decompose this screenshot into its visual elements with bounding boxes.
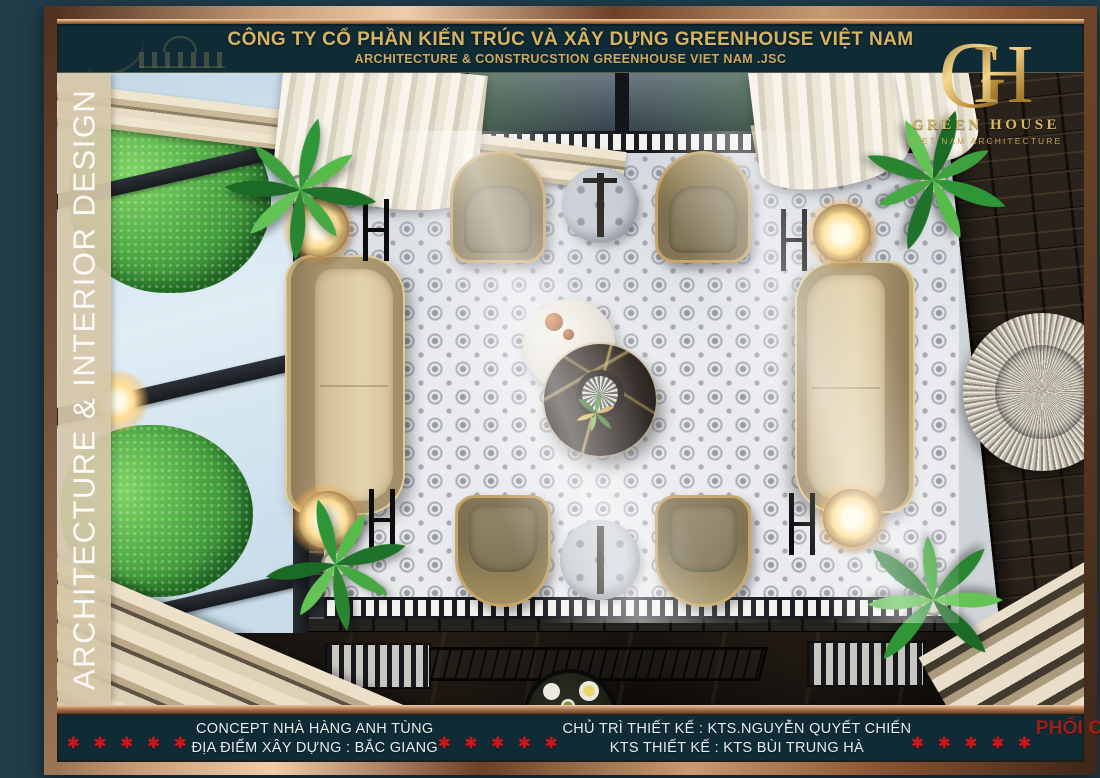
side-band-label: ARCHITECTURE & INTERIOR DESIGN bbox=[58, 73, 111, 705]
copper-decor-object bbox=[545, 313, 563, 331]
star-group: ✱ ✱ ✱ ✱ ✱ bbox=[438, 734, 563, 759]
sheet-title: PHỐI CẢNH NỘI THẤT TẦNG 01 bbox=[1036, 718, 1100, 740]
design-architect: KTS THIẾT KẾ : KTS BÙI TRUNG HÀ bbox=[562, 739, 911, 758]
armchair-seat bbox=[469, 505, 537, 572]
cushion-seam bbox=[812, 387, 881, 389]
render-view-top-down: ARCHITECTURE & INTERIOR DESIGN bbox=[57, 73, 1084, 705]
copper-decor-object bbox=[563, 329, 574, 340]
console-leg-cross bbox=[583, 178, 617, 183]
logo-tagline: VIET NAM ARCHITECTURE bbox=[900, 136, 1072, 146]
armchair-top-left bbox=[450, 151, 546, 263]
lead-architect: CHỦ TRÌ THIẾT KẾ : KTS.NGUYỄN QUYẾT CHIẾ… bbox=[562, 720, 911, 739]
project-concept: CONCEPT NHÀ HÀNG ANH TÙNG bbox=[192, 720, 438, 739]
console-leg bbox=[597, 173, 604, 237]
black-candelabra bbox=[781, 209, 807, 271]
black-candelabra bbox=[789, 493, 815, 555]
dome-watermark-icon bbox=[163, 36, 197, 52]
star-group: ✱ ✱ ✱ ✱ ✱ bbox=[911, 734, 1036, 759]
project-info-block: CONCEPT NHÀ HÀNG ANH TÙNG ĐỊA ĐIỂM XÂY D… bbox=[192, 717, 438, 759]
designer-info-block: CHỦ TRÌ THIẾT KẾ : KTS.NGUYỄN QUYẾT CHIẾ… bbox=[562, 717, 911, 759]
cushion-seam bbox=[320, 385, 389, 387]
monogram-letter-h: H bbox=[973, 28, 1034, 121]
round-console-top bbox=[562, 167, 638, 243]
armchair-seat bbox=[669, 505, 737, 572]
project-location: ĐỊA ĐIỂM XÂY DỰNG : BẮC GIANG bbox=[192, 739, 438, 758]
console-leg bbox=[597, 526, 604, 593]
header-building-watermark bbox=[79, 34, 289, 72]
sunburst-table-top bbox=[995, 345, 1084, 439]
round-console-bottom bbox=[560, 520, 640, 600]
armchair-seat bbox=[669, 186, 737, 253]
leaf-cluster bbox=[576, 390, 615, 432]
armchair-bottom-left bbox=[455, 495, 551, 607]
presentation-board-canvas: CÔNG TY CỔ PHẦN KIẾN TRÚC VÀ XÂY DỰNG GR… bbox=[0, 0, 1100, 778]
footer-band: ✱ ✱ ✱ ✱ ✱ CONCEPT NHÀ HÀNG ANH TÙNG ĐỊA … bbox=[57, 714, 1084, 761]
black-marble-coffee-table bbox=[544, 344, 656, 456]
armchair-bottom-right bbox=[655, 495, 751, 607]
copper-divider-bar bbox=[57, 705, 1084, 714]
plate bbox=[579, 681, 599, 701]
sofa-right bbox=[795, 261, 915, 513]
star-group: ✱ ✱ ✱ ✱ ✱ bbox=[67, 734, 192, 759]
greenhouse-logo: GH GREEN HOUSE VIET NAM ARCHITECTURE bbox=[900, 27, 1072, 146]
armchair-seat bbox=[464, 186, 532, 253]
copper-frame-board: CÔNG TY CỔ PHẦN KIẾN TRÚC VÀ XÂY DỰNG GR… bbox=[44, 6, 1097, 775]
columns-watermark-icon bbox=[139, 52, 225, 68]
sheet-subtitle: KHU KHÁCH ĐỢI bbox=[1036, 742, 1100, 758]
sheet-title-block: PHỐI CẢNH NỘI THẤT TẦNG 01 KHU KHÁCH ĐỢI bbox=[1036, 717, 1100, 759]
table-plant-leaves bbox=[560, 380, 632, 444]
plate bbox=[561, 699, 575, 705]
gh-monogram-icon: GH bbox=[900, 27, 1072, 123]
sofa-right-cushion bbox=[807, 275, 885, 499]
armchair-top-right bbox=[655, 151, 751, 263]
plate bbox=[543, 683, 560, 700]
side-title-band: ARCHITECTURE & INTERIOR DESIGN bbox=[58, 73, 111, 705]
